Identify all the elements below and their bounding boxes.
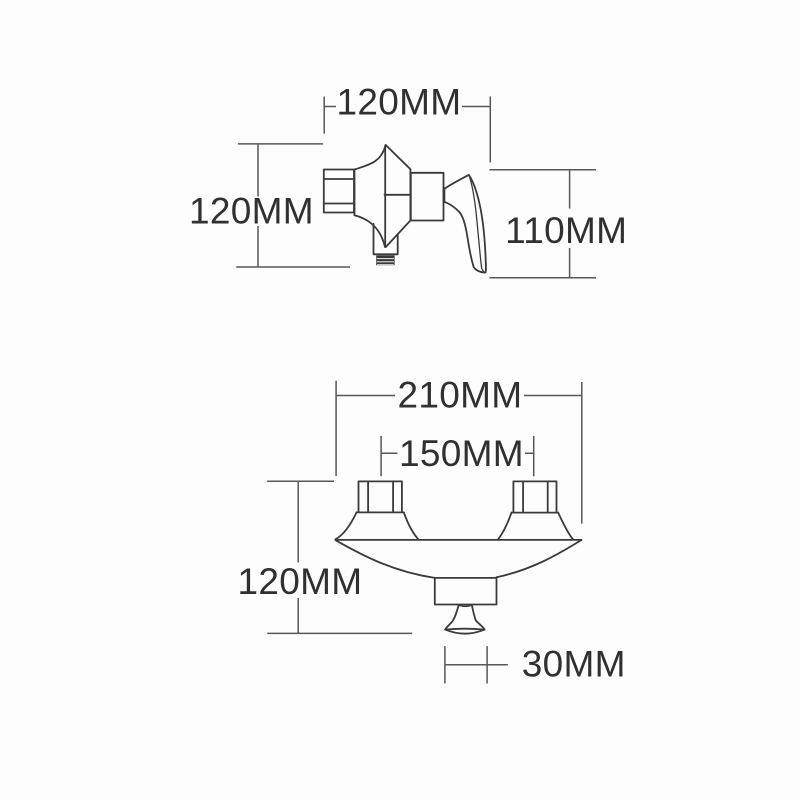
svg-text:110MM: 110MM: [505, 210, 627, 251]
svg-text:150MM: 150MM: [399, 433, 524, 474]
svg-text:120MM: 120MM: [238, 561, 363, 602]
svg-text:120MM: 120MM: [189, 190, 314, 231]
svg-text:30MM: 30MM: [522, 644, 626, 685]
svg-text:120MM: 120MM: [337, 82, 462, 123]
svg-text:210MM: 210MM: [398, 375, 523, 416]
